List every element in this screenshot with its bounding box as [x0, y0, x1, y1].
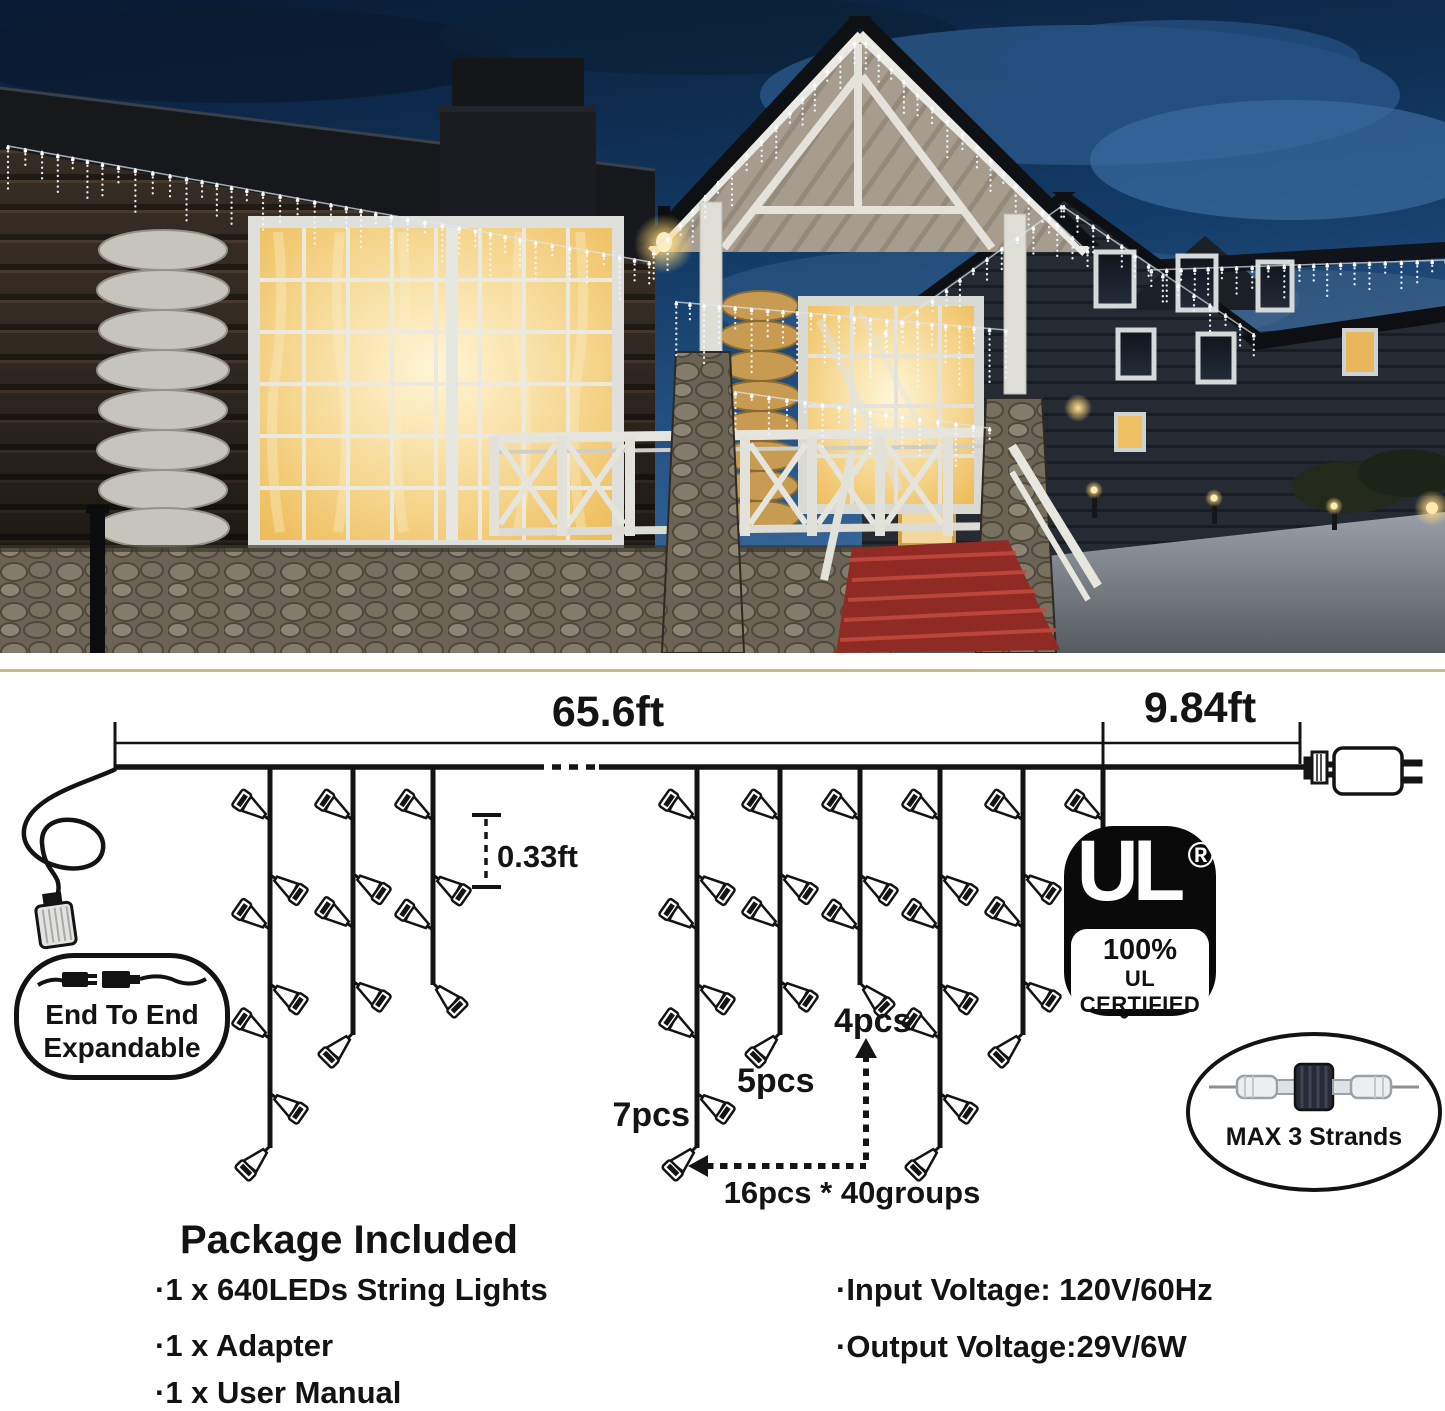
- spec-output-voltage: ·Output Voltage:29V/6W: [836, 1329, 1187, 1365]
- plug-icon: [34, 891, 77, 948]
- end-to-end-plug-icon: [36, 965, 208, 993]
- end-to-end-badge: End To End Expandable: [14, 953, 230, 1080]
- package-item-adapter: ·1 x Adapter: [155, 1328, 333, 1364]
- ul-brand-text: UL: [1064, 822, 1192, 921]
- ul-certified-text: UL CERTIFIED: [1071, 966, 1209, 1018]
- drop7-label: 7pcs: [613, 1096, 691, 1134]
- max-strands-badge: MAX 3 Strands: [1186, 1032, 1442, 1192]
- max-strands-label: MAX 3 Strands: [1190, 1123, 1438, 1152]
- ul-certified-panel: 100% UL CERTIFIED: [1071, 929, 1209, 1009]
- group-note-label: 16pcs * 40groups: [724, 1175, 981, 1210]
- end-to-end-line1: End To End: [19, 998, 225, 1031]
- registered-mark-icon: ®: [1187, 834, 1214, 876]
- dim-lead-label: 9.84ft: [1144, 684, 1256, 732]
- wiring-diagram: 65.6ft 9.84ft 0.33ft 7pcs 5pcs 4pcs 16pc…: [0, 0, 1445, 1410]
- ul-percent-text: 100%: [1071, 934, 1209, 966]
- package-item-lights: ·1 x 640LEDs String Lights: [155, 1272, 548, 1308]
- package-title: Package Included: [180, 1218, 518, 1263]
- drop5-label: 5pcs: [737, 1062, 815, 1100]
- connector-icon: [1209, 1058, 1419, 1116]
- dim-main-label: 65.6ft: [552, 688, 664, 736]
- package-item-manual: ·1 x User Manual: [155, 1375, 401, 1411]
- adapter-icon: [1304, 748, 1422, 794]
- drop4-label: 4pcs: [834, 1002, 912, 1040]
- end-to-end-line2: Expandable: [19, 1031, 225, 1064]
- drop-spacing-label: 0.33ft: [497, 839, 578, 874]
- ul-logo: UL ® 100% UL CERTIFIED: [1064, 826, 1216, 1016]
- spec-input-voltage: ·Input Voltage: 120V/60Hz: [836, 1272, 1213, 1308]
